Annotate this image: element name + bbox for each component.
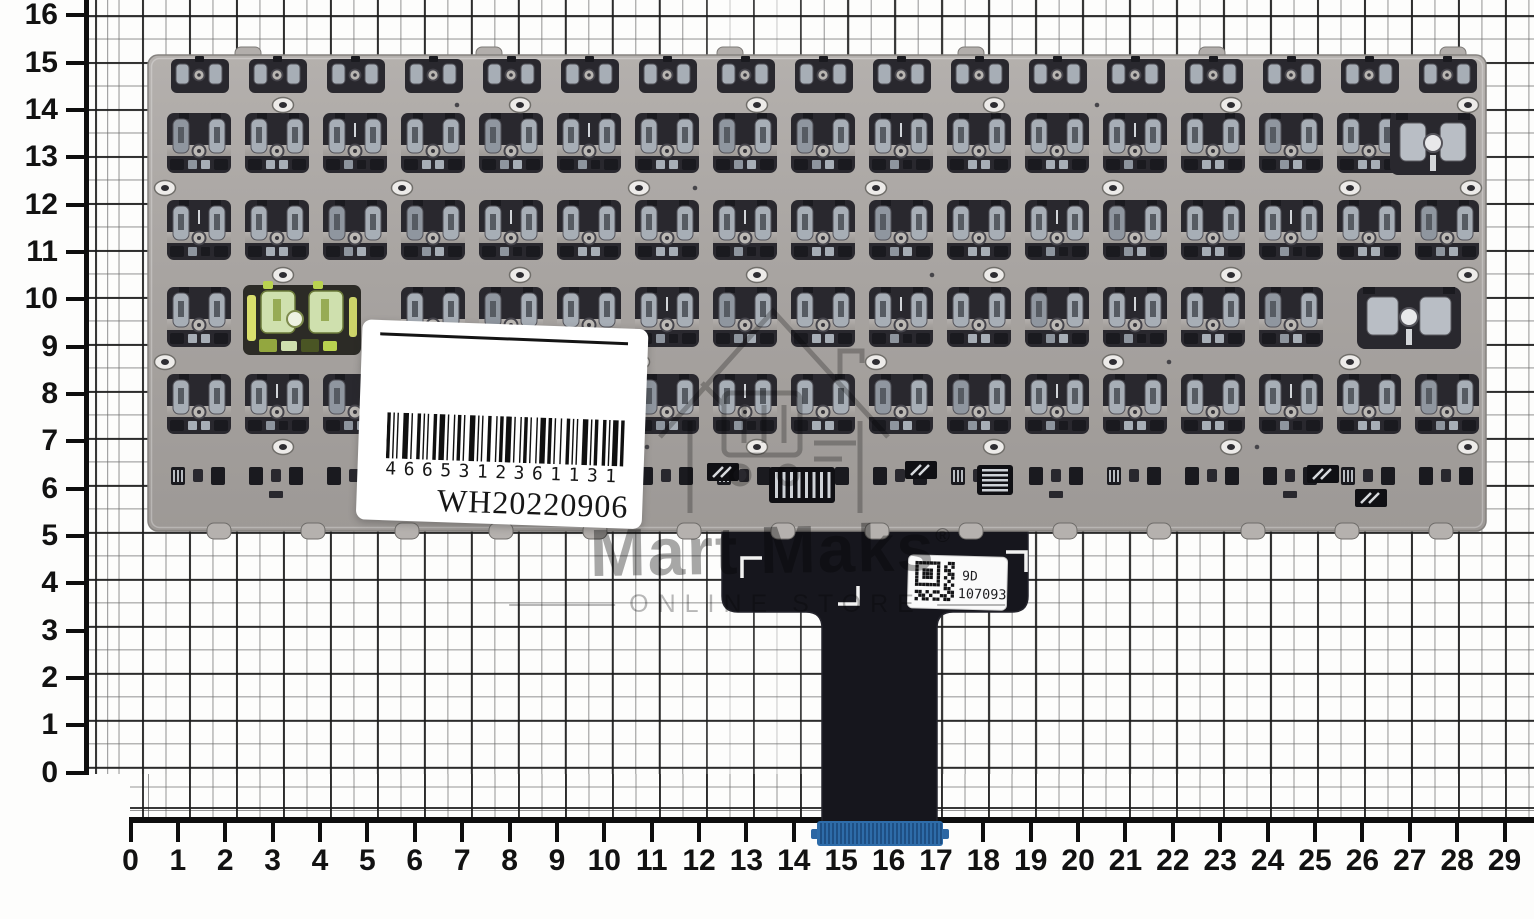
- function-key-module: [561, 56, 619, 93]
- function-key-module: [249, 56, 307, 93]
- key-module: [167, 287, 231, 347]
- screw-hole: [1340, 181, 1361, 196]
- sticker-top-line: [380, 332, 628, 345]
- plate-bottom-tab: [1147, 523, 1171, 539]
- screw-hole: [1461, 181, 1482, 196]
- key-module: [1259, 200, 1323, 260]
- screw-hole: [1103, 355, 1124, 370]
- function-key-module: [1029, 56, 1087, 93]
- function-key-module: [1107, 56, 1165, 93]
- screw-hole: [984, 268, 1005, 283]
- screw-hole: [1458, 440, 1479, 455]
- key-module: [479, 113, 543, 173]
- screw-hole: [629, 181, 650, 196]
- plate-bottom-tab: [1053, 523, 1077, 539]
- key-module: [401, 200, 465, 260]
- function-key-module: [1185, 56, 1243, 93]
- key-module: [947, 113, 1011, 173]
- key-module: [713, 113, 777, 173]
- key-module: [1259, 374, 1323, 434]
- function-key-module: [639, 56, 697, 93]
- function-key-module: [171, 56, 229, 93]
- function-key-module: [1263, 56, 1321, 93]
- keyboard-backplate: [147, 43, 1487, 545]
- cable-label: 9D 107093: [907, 555, 1007, 611]
- screw-hole: [273, 98, 294, 113]
- barcode-sticker: 4665312361131 WH20220906: [356, 319, 649, 529]
- screw-hole: [1103, 181, 1124, 196]
- diagonal-pad: [905, 461, 937, 479]
- key-module: [1181, 287, 1245, 347]
- screw-hole: [1458, 98, 1479, 113]
- key-module: [1259, 287, 1323, 347]
- key-module: [869, 287, 933, 347]
- wide-key-module: [1390, 113, 1476, 175]
- function-key-module: [795, 56, 853, 93]
- key-module: [401, 113, 465, 173]
- screw-hole: [155, 181, 176, 196]
- key-module: [1103, 200, 1167, 260]
- key-module: [869, 374, 933, 434]
- key-module: [1181, 374, 1245, 434]
- screw-hole: [1221, 98, 1242, 113]
- key-module: [1103, 374, 1167, 434]
- diagonal-pad: [707, 463, 739, 481]
- screw-hole: [273, 268, 294, 283]
- key-module: [1337, 200, 1401, 260]
- key-module: [245, 200, 309, 260]
- key-module: [635, 200, 699, 260]
- key-module: [167, 200, 231, 260]
- screw-hole: [747, 268, 768, 283]
- key-module: [791, 113, 855, 173]
- key-module: [1181, 113, 1245, 173]
- function-key-module: [483, 56, 541, 93]
- plate-bottom-tab: [1241, 523, 1265, 539]
- plate-bottom-tab: [301, 523, 325, 539]
- key-module: [791, 374, 855, 434]
- key-module: [167, 374, 231, 434]
- key-module: [1259, 113, 1323, 173]
- striped-pad: [977, 465, 1013, 495]
- key-module: [479, 200, 543, 260]
- key-module: [713, 200, 777, 260]
- screw-hole: [747, 98, 768, 113]
- key-module: [1025, 287, 1089, 347]
- key-module: [167, 113, 231, 173]
- key-module: [245, 374, 309, 434]
- cable-connector-blue-tip: [811, 821, 949, 846]
- screw-hole: [392, 181, 413, 196]
- key-module: [713, 374, 777, 434]
- screw-hole: [1221, 268, 1242, 283]
- key-module: [791, 287, 855, 347]
- key-module: [1025, 200, 1089, 260]
- plate-bottom-tab: [865, 523, 889, 539]
- sticker-serial-number: WH20220906: [398, 481, 629, 526]
- key-module: [947, 287, 1011, 347]
- key-module: [1103, 287, 1167, 347]
- screw-hole: [747, 440, 768, 455]
- screw-hole: [866, 181, 887, 196]
- key-module: [1025, 374, 1089, 434]
- screw-hole: [510, 268, 531, 283]
- function-key-module: [327, 56, 385, 93]
- screw-hole: [510, 98, 531, 113]
- screw-hole: [984, 98, 1005, 113]
- key-module: [1181, 200, 1245, 260]
- key-module: [1337, 374, 1401, 434]
- key-module: [557, 200, 621, 260]
- key-module: [557, 113, 621, 173]
- fpc-connector-pad: [769, 467, 835, 503]
- screw-hole: [1340, 355, 1361, 370]
- key-module: [791, 200, 855, 260]
- function-key-module: [405, 56, 463, 93]
- key-module: [869, 200, 933, 260]
- key-module: [1415, 200, 1479, 260]
- function-key-module: [873, 56, 931, 93]
- plate-bottom-tab: [1335, 523, 1359, 539]
- plate-bottom-tab: [677, 523, 701, 539]
- key-module: [635, 113, 699, 173]
- screw-hole: [1458, 268, 1479, 283]
- plate-bottom-tab: [489, 523, 513, 539]
- diagonal-pad: [1307, 465, 1339, 483]
- key-module: [1103, 113, 1167, 173]
- key-module: [1025, 113, 1089, 173]
- function-key-module: [717, 56, 775, 93]
- function-key-module: [1341, 56, 1399, 93]
- function-key-module: [951, 56, 1009, 93]
- diagonal-pad: [1355, 489, 1387, 507]
- plate-bottom-tab: [959, 523, 983, 539]
- key-module: [869, 113, 933, 173]
- cable-label-prefix: 9D: [962, 569, 978, 584]
- screw-hole: [273, 440, 294, 455]
- product-photo-canvas: 012345678910111213141516 012345678910111…: [0, 0, 1534, 919]
- key-module: [323, 200, 387, 260]
- plate-bottom-tab: [771, 523, 795, 539]
- function-key-module: [1419, 56, 1477, 93]
- key-module: [947, 200, 1011, 260]
- plate-bottom-tab: [207, 523, 231, 539]
- plate-bottom-tab: [1429, 523, 1453, 539]
- key-module: [245, 113, 309, 173]
- screw-hole: [155, 355, 176, 370]
- key-module: [1415, 374, 1479, 434]
- plate-bottom-tab: [395, 523, 419, 539]
- screw-hole: [1221, 440, 1242, 455]
- key-module: [947, 374, 1011, 434]
- cable-label-number: 107093: [957, 586, 1006, 603]
- key-module: [323, 113, 387, 173]
- screw-hole: [866, 355, 887, 370]
- screw-hole: [984, 440, 1005, 455]
- barcode-icon: [386, 412, 625, 466]
- key-module-backlight-green: [243, 281, 361, 355]
- key-module: [713, 287, 777, 347]
- wide-key-module: [1357, 287, 1461, 349]
